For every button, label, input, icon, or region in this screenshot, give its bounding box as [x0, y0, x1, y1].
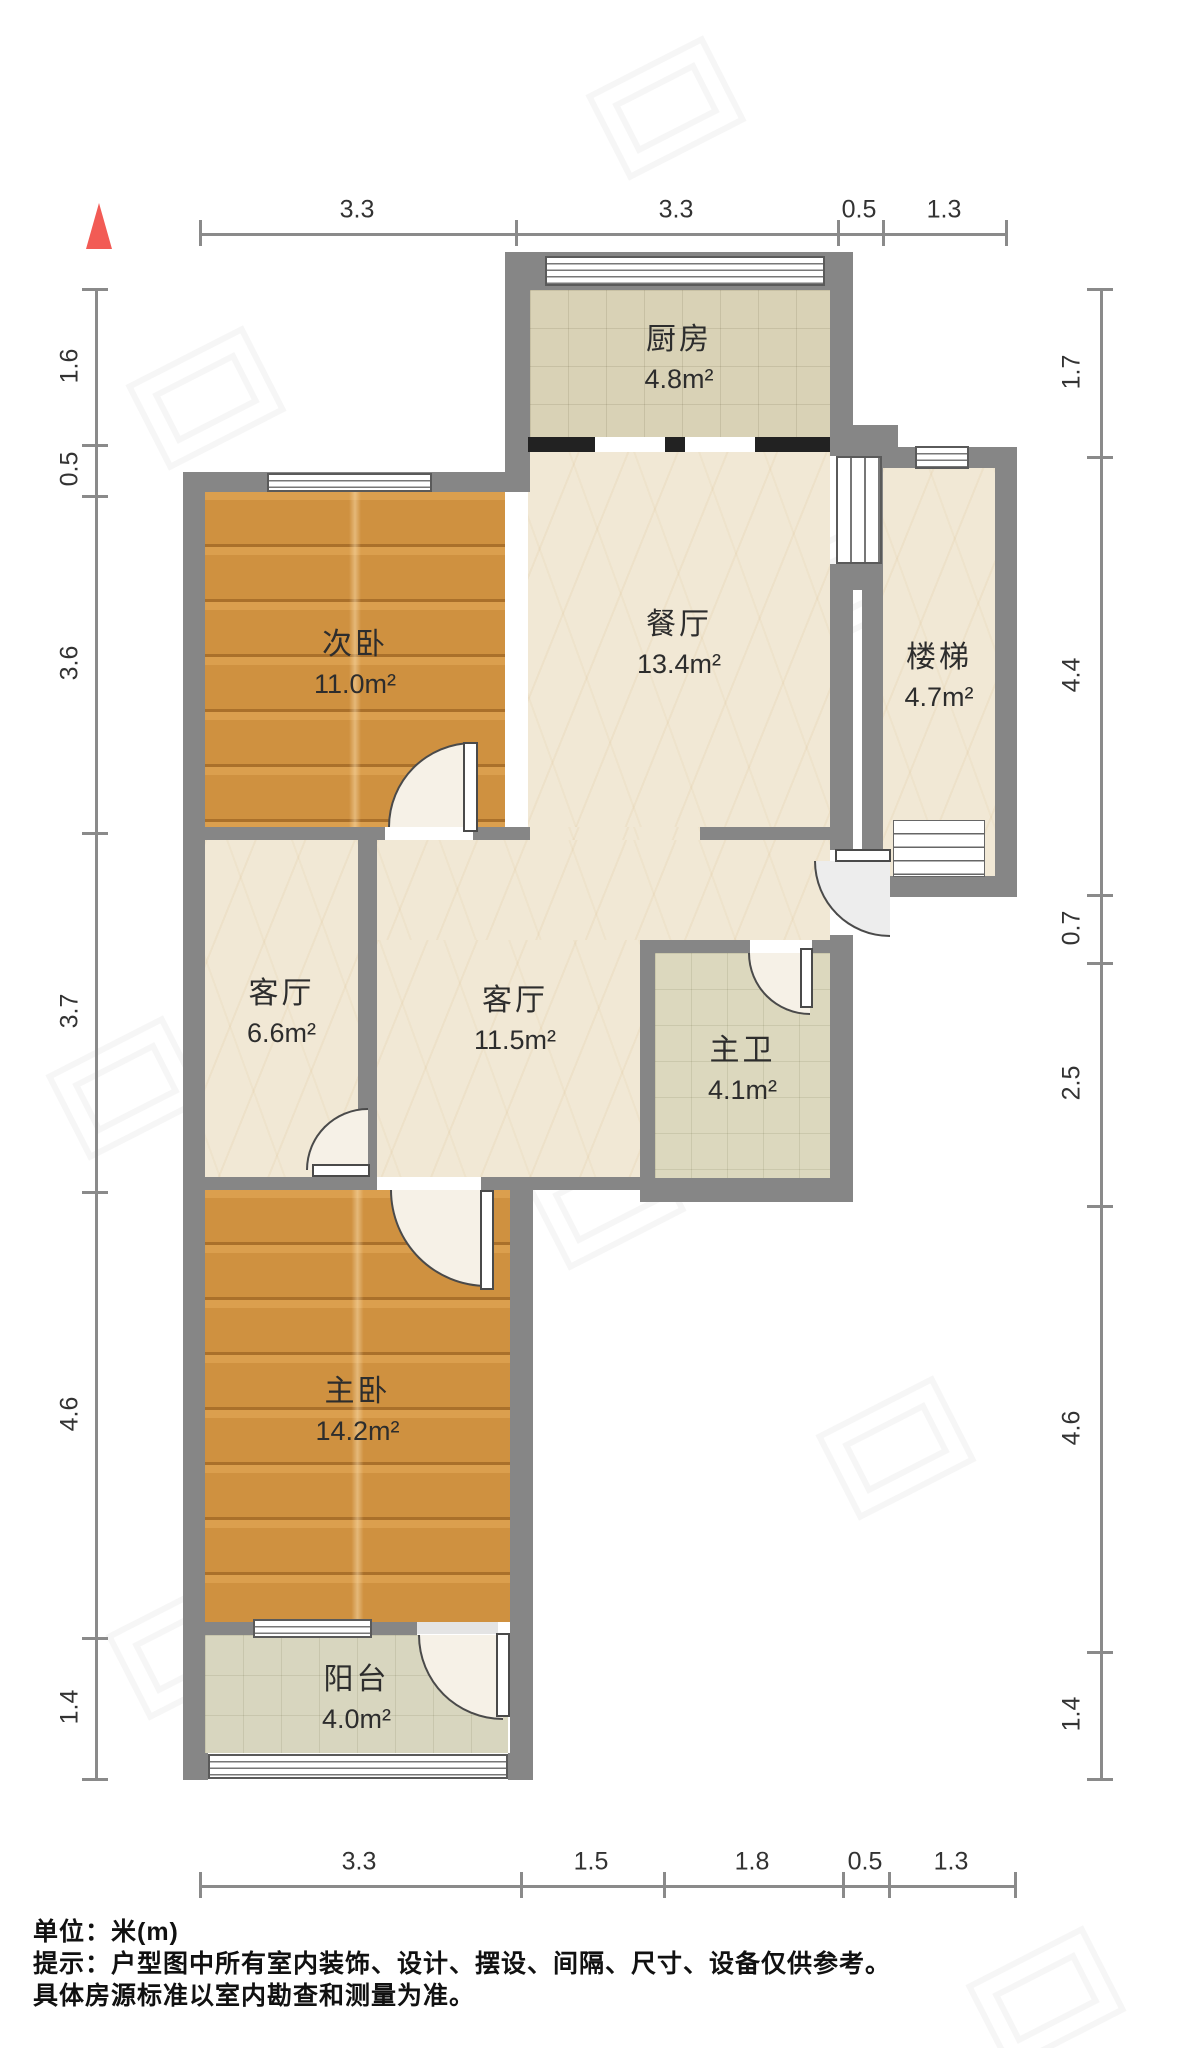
dim-label-left: 3.7: [56, 994, 85, 1029]
dim-tick: [1087, 894, 1113, 897]
dim-line-left: [95, 288, 98, 1778]
wall-bathroom-top-b: [812, 940, 853, 953]
bedroom2-window: [267, 473, 432, 492]
stair-treads: [893, 820, 985, 877]
dim-tick: [82, 495, 108, 498]
wall-balcony-b: [372, 1622, 417, 1635]
dim-tick: [82, 832, 108, 835]
kitchen-opening: [685, 437, 755, 452]
living-large-floor: [377, 840, 830, 940]
dim-tick: [837, 220, 840, 246]
dim-line-right: [1100, 288, 1103, 1778]
dining-floor: [528, 452, 830, 827]
dim-label-left: 4.6: [56, 1397, 85, 1432]
bedroom1-door: [480, 1190, 494, 1290]
dim-tick: [1087, 1778, 1113, 1781]
dim-label-bottom: 1.8: [735, 1848, 770, 1877]
wall-bedroom1-top-a: [183, 1177, 377, 1190]
dim-label-bottom: 3.3: [342, 1848, 377, 1877]
kitchen-opening: [595, 437, 665, 452]
dim-label-bottom: 1.5: [574, 1848, 609, 1877]
dim-tick: [1087, 962, 1113, 965]
living-door: [312, 1164, 370, 1177]
dim-tick: [842, 1872, 845, 1898]
wall-bathroom-left: [640, 940, 655, 1202]
dim-tick: [1014, 1872, 1017, 1898]
wall-bedroom2-bottom-a: [183, 827, 385, 840]
dim-label-top: 1.3: [927, 196, 962, 225]
wall-bedroom2-bottom-b: [473, 827, 530, 840]
dim-label-left: 1.6: [56, 349, 85, 384]
kitchen-lintel: [528, 437, 830, 452]
dim-tick: [1087, 1651, 1113, 1654]
wall-connector: [853, 425, 898, 449]
entry-door: [835, 849, 891, 862]
watermark: [965, 1925, 1126, 2048]
dim-tick: [199, 220, 202, 246]
watermark: [585, 35, 746, 180]
dim-label-top: 3.3: [340, 196, 375, 225]
balcony-door-sill: [417, 1622, 498, 1634]
balcony-window: [208, 1754, 508, 1779]
watermark: [125, 325, 286, 470]
stairs-top-window: [915, 446, 969, 469]
dim-label-left: 0.5: [56, 452, 85, 487]
wall-right-lower: [830, 935, 853, 1202]
bathroom-door: [800, 948, 813, 1008]
dim-label-right: 1.7: [1058, 355, 1087, 390]
dim-line-bottom: [199, 1885, 1014, 1888]
bedroom1-balcony-window: [253, 1619, 372, 1638]
kitchen-floor: [530, 290, 830, 437]
dim-tick: [82, 1637, 108, 1640]
dim-tick: [82, 1191, 108, 1194]
kitchen-window: [545, 256, 825, 286]
dim-tick: [82, 288, 108, 291]
dim-label-right: 2.5: [1058, 1066, 1087, 1101]
wall-bathroom-bottom: [640, 1178, 853, 1202]
living-large-floor2: [377, 940, 640, 1177]
dim-tick: [888, 1872, 891, 1898]
stairs-floor: [883, 468, 995, 876]
dim-label-left: 1.4: [56, 1690, 85, 1725]
stairwell-side-window: [836, 456, 882, 564]
wall-bedroom1-top-b: [481, 1177, 653, 1190]
dim-label-left: 3.6: [56, 646, 85, 681]
dim-label-right: 1.4: [1058, 1697, 1087, 1732]
dim-label-bottom: 0.5: [848, 1848, 883, 1877]
dim-tick: [82, 1778, 108, 1781]
dim-tick: [1087, 456, 1113, 459]
dim-label-right: 4.6: [1058, 1411, 1087, 1446]
dim-label-top: 3.3: [659, 196, 694, 225]
dim-tick: [1005, 220, 1008, 246]
wall-corner-bl: [183, 1753, 208, 1780]
floorplan-page: 厨房 4.8m² 餐厅 13.4m² 楼梯 4.7m² 次卧 11.0m² 客厅…: [0, 0, 1199, 2048]
dim-tick: [663, 1872, 666, 1898]
dim-tick: [520, 1872, 523, 1898]
wall-balcony-a: [183, 1622, 253, 1635]
footer-unit: 单位：米(m): [33, 1912, 179, 1948]
wall-corner-br: [508, 1753, 533, 1780]
north-arrow-icon: [86, 203, 112, 249]
footer-tip: 提示：户型图中所有室内装饰、设计、摆设、间隔、尺寸、设备仅供参考。: [33, 1944, 891, 1980]
dim-label-right: 0.7: [1058, 911, 1087, 946]
dim-tick: [515, 220, 518, 246]
wall-left-outer: [183, 472, 205, 1780]
wall-bathroom-top-a: [640, 940, 750, 953]
dim-tick: [199, 1872, 202, 1898]
dim-tick: [1087, 288, 1113, 291]
dim-tick: [1087, 1205, 1113, 1208]
footer-tip2: 具体房源标准以室内勘查和测量为准。: [33, 1976, 475, 2012]
hall-floor: [528, 827, 700, 840]
wall-stairs-right: [995, 447, 1017, 897]
balcony-door: [496, 1633, 510, 1717]
wall-bedroom1-right: [510, 1177, 533, 1780]
dim-label-bottom: 1.3: [934, 1848, 969, 1877]
wall-right-mid: [830, 590, 853, 850]
dim-tick: [882, 220, 885, 246]
wall-right-upper: [830, 252, 853, 456]
dim-label-top: 0.5: [842, 196, 877, 225]
wall-hall-stub: [700, 827, 830, 840]
dim-tick: [82, 444, 108, 447]
watermark: [815, 1375, 976, 1520]
dim-label-right: 4.4: [1058, 658, 1087, 693]
bedroom2-door: [463, 742, 478, 832]
